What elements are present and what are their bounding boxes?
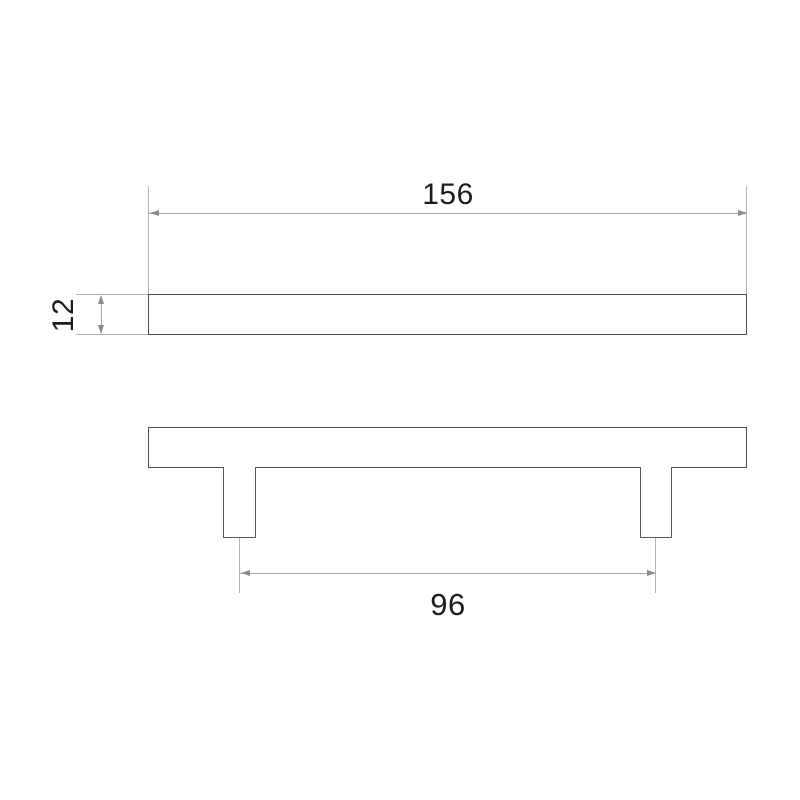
extension-line-left	[239, 538, 240, 593]
dimension-label-thickness: 12	[48, 285, 80, 345]
mounting-post-right	[640, 467, 672, 538]
arrowhead-down-icon	[98, 325, 104, 334]
arrowhead-left-icon	[241, 570, 250, 576]
dimension-label-length: 156	[149, 179, 747, 211]
arrowhead-right-icon	[647, 570, 656, 576]
dimension-line-length	[149, 213, 747, 214]
handle-bar-front	[148, 427, 747, 468]
extension-line-bottom	[76, 334, 148, 335]
handle-bar-top	[148, 294, 747, 335]
technical-drawing: 156 12 96	[0, 0, 800, 800]
extension-line-right	[655, 538, 656, 593]
arrowhead-up-icon	[98, 295, 104, 304]
dimension-line-spacing	[240, 573, 656, 574]
extension-line-top	[76, 294, 148, 295]
mounting-post-left	[223, 467, 256, 538]
dimension-label-spacing: 96	[240, 589, 656, 621]
